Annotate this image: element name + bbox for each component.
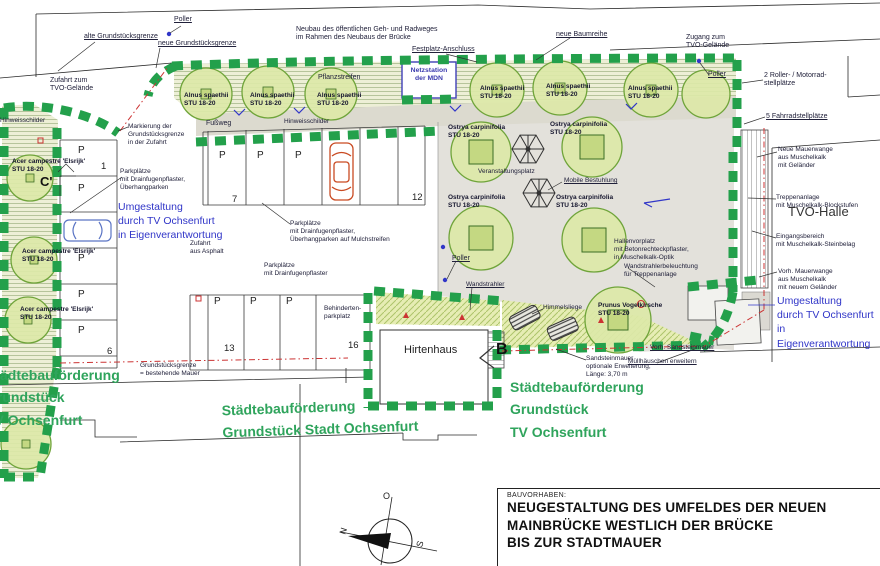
label-hallenvorplatz: Hallenvorplatz mit Betonrechteckpflaster… bbox=[614, 238, 689, 261]
stall-p: P bbox=[286, 296, 293, 308]
stall-number-12: 12 bbox=[412, 192, 423, 203]
label-parkplaetze-mulch: Parkplätze mit Drainfugenpflaster, Überh… bbox=[290, 220, 390, 243]
label-markierung: Markierung der Grundstücksgrenze in der … bbox=[128, 123, 184, 146]
label-behindertenparkplatz: Behinderten- parkplatz bbox=[324, 305, 361, 321]
label-poller-right: Poller bbox=[708, 71, 726, 79]
stall-p: P bbox=[78, 145, 85, 157]
label-acer-3: Acer campestre 'Elsrijk' STU 18-20 bbox=[20, 306, 93, 322]
label-fahrradstellplaetze: 5 Fahrradstellplätze bbox=[766, 113, 827, 121]
label-muellhaeuschen: Müllhäuschen erweitern bbox=[628, 358, 697, 366]
label-hinweisschilder-links: Hinweisschilder bbox=[0, 117, 45, 125]
label-poller-top: Poller bbox=[174, 16, 192, 24]
compass-rose bbox=[341, 497, 437, 565]
label-himmelsliege: Himmelsliege bbox=[543, 304, 582, 312]
label-parkplaetze-ueberhang: Parkplätze mit Drainfugenpflaster, Überh… bbox=[120, 168, 185, 191]
muellhaus-2 bbox=[715, 299, 761, 345]
label-wandstrahler: Wandstrahler bbox=[466, 281, 504, 289]
stall-number-6: 6 bbox=[107, 346, 112, 357]
label-ostrya-2: Ostrya carpinifolia STU 18-20 bbox=[550, 121, 607, 137]
label-wandbeleuchtung: Wandstrahlerbeleuchtung für Treppenanlag… bbox=[624, 263, 698, 279]
label-roller-stellplaetze: 2 Roller- / Motorrad- stellplätze bbox=[764, 72, 827, 89]
label-acer-1: Acer campestre 'Elsrijk' STU 18-20 bbox=[12, 158, 85, 174]
label-neue-grenze: neue Grundstücksgrenze bbox=[158, 40, 236, 48]
compass-o: O bbox=[383, 491, 390, 501]
label-pflanzstreifen: Pflanzstreifen bbox=[318, 74, 360, 82]
label-neue-mauerwange: Neue Mauerwange aus Muschelkalk mit Gelä… bbox=[778, 146, 833, 169]
label-treppenanlage: Treppenanlage mit Muschelkalk-Blockstufe… bbox=[776, 194, 858, 210]
label-parkplaetze-drain: Parkplätze mit Drainfugenpflaster bbox=[264, 262, 328, 278]
label-ostrya-4: Ostrya carpinifolia STU 18-20 bbox=[556, 194, 613, 210]
label-mobile-bestuhlung: Mobile Bestuhlung bbox=[564, 177, 617, 185]
stall-p: P bbox=[78, 183, 85, 195]
label-staedtebau-tv-rechts: Städtebauförderung Grundstück TV Ochsenf… bbox=[510, 376, 644, 443]
stall-p: P bbox=[78, 325, 85, 337]
label-prunus: Prunus Vogelkirsche STU 18-20 bbox=[598, 302, 662, 318]
label-alnus-6: Alnus spaethii STU 18-20 bbox=[628, 85, 672, 101]
label-vorh-mauerwange: Vorh. Mauerwange aus Muschelkalk mit neu… bbox=[778, 268, 837, 291]
stall-p: P bbox=[250, 296, 257, 308]
label-vorh-sandsteinmauer: Vorh. Sandsteinmauer bbox=[650, 344, 714, 352]
label-alnus-1: Alnus spaethii STU 18-20 bbox=[184, 92, 228, 108]
stall-p: P bbox=[78, 289, 85, 301]
label-fussweg: Fußweg bbox=[206, 120, 231, 128]
label-ostrya-3: Ostrya carpinifolia STU 18-20 bbox=[448, 194, 505, 210]
label-zufahrt-tvo: Zufahrt zum TVO-Gelände bbox=[50, 77, 93, 94]
title-block: BAUVORHABEN: NEUGESTALTUNG DES UMFELDES … bbox=[497, 488, 880, 566]
stall-number-13: 13 bbox=[224, 343, 235, 354]
label-alnus-2: Alnus spaethii STU 18-20 bbox=[250, 92, 294, 108]
hedge-netzstation bbox=[402, 99, 458, 100]
label-poller-mitte: Poller bbox=[452, 255, 470, 263]
label-umgestaltung-rechts: Umgestaltung durch TV Ochsenfurt in Eige… bbox=[777, 294, 880, 351]
label-alte-grenze: alte Grundstücksgrenze bbox=[84, 33, 158, 41]
label-festplatz-anschluss: Festplatz-Anschluss bbox=[412, 46, 475, 54]
label-hirtenhaus: Hirtenhaus bbox=[404, 344, 457, 357]
plan-drawing bbox=[0, 0, 880, 566]
title-line-2: MAINBRÜCKE WESTLICH DER BRÜCKE bbox=[507, 517, 880, 535]
stall-p: P bbox=[257, 150, 264, 162]
label-neubau-radweg: Neubau des öffentlichen Geh- und Radwege… bbox=[296, 26, 438, 43]
label-hinweisschilder: Hinweisschilder bbox=[284, 118, 329, 126]
compass-needle bbox=[348, 533, 391, 549]
title-line-1: NEUGESTALTUNG DES UMFELDES DER NEUEN bbox=[507, 499, 880, 517]
label-zugang-tvo: Zugang zum TVO-Gelände bbox=[686, 34, 729, 51]
label-veranstaltungsplatz: Veranstaltungsplatz bbox=[478, 168, 535, 176]
label-grundstuecksgrenze-mauer: Grundstücksgrenze = bestehende Mauer bbox=[140, 362, 200, 378]
stall-number-1: 1 bbox=[101, 161, 106, 172]
stall-number-7: 7 bbox=[232, 194, 237, 205]
stall-p: P bbox=[295, 150, 302, 162]
label-ostrya-1: Ostrya carpinifolia STU 18-20 bbox=[448, 124, 505, 140]
title-kicker: BAUVORHABEN: bbox=[507, 492, 880, 499]
label-umgestaltung-links: Umgestaltung durch TV Ochsenfurt in Eige… bbox=[118, 200, 222, 243]
stall-p: P bbox=[219, 150, 226, 162]
label-staedtebau-stadt: Städtebauförderung Grundstück Stadt Ochs… bbox=[221, 393, 418, 445]
stall-number-16: 16 bbox=[348, 340, 359, 351]
site-plan: Poller alte Grundstücksgrenze neue Grund… bbox=[0, 0, 880, 566]
label-alnus-3: Alnus spaethii STU 18-20 bbox=[317, 92, 361, 108]
label-neue-baumreihe: neue Baumreihe bbox=[556, 31, 607, 39]
section-marker-b: B bbox=[496, 340, 508, 359]
label-alnus-5: Alnus spaethii STU 18-20 bbox=[546, 83, 590, 99]
car-blue bbox=[64, 220, 111, 241]
hedge-north-left-curl bbox=[148, 66, 176, 96]
stall-p: P bbox=[214, 296, 221, 308]
stall-p: P bbox=[78, 253, 85, 265]
netzstation-label: Netzstation der MDN bbox=[404, 67, 454, 83]
section-marker-c: C' bbox=[40, 174, 52, 190]
car-orange bbox=[330, 143, 353, 200]
label-alnus-4: Alnus spaethii STU 18-20 bbox=[480, 85, 524, 101]
label-staedtebau-tv-links: Städtebauförderung Grundstück TV Ochsenf… bbox=[0, 364, 120, 431]
label-zufahrt-asphalt: Zufahrt aus Asphalt bbox=[190, 240, 224, 256]
label-eingangsbereich: Eingangsbereich mit Muschelkalk-Steinbel… bbox=[776, 233, 855, 249]
title-line-3: BIS ZUR STADTMAUER bbox=[507, 534, 880, 552]
